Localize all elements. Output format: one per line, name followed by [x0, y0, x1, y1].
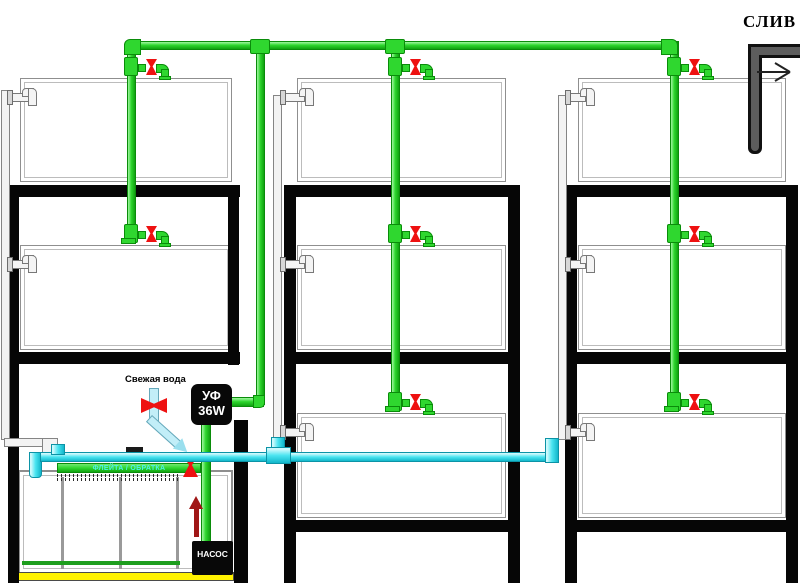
tap-spout-flange	[159, 76, 171, 80]
fresh-water-label: Свежая вода	[125, 374, 186, 385]
fresh-water-arrow-icon	[146, 415, 182, 448]
overflow-union-flange	[280, 90, 286, 105]
collector-rack2-tee	[266, 447, 291, 464]
rack1-post-right-upper	[228, 185, 239, 365]
tap-spout-flange	[702, 76, 714, 80]
flow-up-arrow-head	[189, 496, 203, 509]
tap-rack2-tier2	[385, 224, 433, 247]
overflow-rack2-tier1	[280, 88, 316, 114]
tap-arm	[138, 64, 146, 72]
tank-rack2-tier1	[297, 78, 506, 182]
overflow-standpipe	[28, 255, 37, 273]
uv-unit: УФ 36W	[191, 384, 232, 425]
tap-end-stub	[385, 406, 400, 412]
rack1-shelf-1	[8, 185, 240, 197]
header-tee-rack2	[385, 39, 405, 54]
tap-rack1-tier2	[121, 224, 169, 247]
tank-rack1-tier1	[20, 78, 232, 182]
tap-tee	[388, 57, 402, 76]
tap-arm	[681, 399, 689, 407]
aquarium-plumbing-diagram: ФЛЕЙТА / ОБРАТКА Свежая вода УФ 36W НАСО…	[0, 0, 800, 583]
pump-label: НАСОС	[192, 549, 233, 559]
header-elbow-right	[661, 39, 678, 55]
rack3-shelf-3	[565, 520, 798, 532]
overflow-rack3-tier3	[565, 423, 597, 449]
tap-end-stub	[664, 406, 679, 412]
spray-bar: ФЛЕЙТА / ОБРАТКА	[57, 463, 201, 473]
uv-unit-label-line2: 36W	[191, 403, 232, 418]
tap-tee	[124, 57, 138, 76]
overflow-rack2-tier2	[280, 255, 316, 281]
tap-arm	[402, 231, 410, 239]
tap-arm	[402, 399, 410, 407]
overflow-rack1-tier2	[7, 255, 39, 281]
overflow-rack3-tier1	[565, 88, 597, 114]
tank-inner-wall	[301, 417, 502, 514]
overflow-standpipe	[586, 88, 595, 106]
tank-inner-wall	[582, 417, 782, 514]
tap-tee	[667, 57, 681, 76]
header-tee-riser	[250, 39, 270, 54]
rack2-shelf-1	[284, 185, 520, 197]
spray-bar-label: ФЛЕЙТА / ОБРАТКА	[93, 465, 166, 472]
overflow-rack2-tier3	[280, 423, 316, 449]
rack1-post-right-lower	[234, 420, 248, 583]
tank-rack2-tier3	[297, 413, 506, 518]
sump-baffle	[119, 477, 122, 569]
sump-baffle	[176, 477, 179, 569]
overflow-union-flange	[565, 90, 571, 105]
overflow-standpipe	[305, 88, 314, 106]
tap-spout-flange	[423, 76, 435, 80]
tap-spout-flange	[702, 243, 714, 247]
overflow-standpipe	[586, 255, 595, 273]
overflow-union-flange	[7, 90, 13, 105]
overflow-union-flange	[565, 425, 571, 440]
sewer-flow-arrow-icon	[757, 60, 795, 84]
collector-rack3-end-elbow	[545, 438, 559, 463]
overflow-standpipe	[28, 88, 37, 106]
tap-spout-flange	[159, 243, 171, 247]
tap-rack2-tier3	[385, 392, 433, 415]
rack2-shelf-2	[284, 352, 520, 364]
tank-rack2-tier2	[297, 245, 506, 350]
tank-inner-wall	[24, 249, 228, 346]
tap-arm	[402, 64, 410, 72]
tap-rack3-tier3	[664, 392, 712, 415]
flow-up-arrow-stem	[194, 509, 199, 537]
tap-spout-flange	[423, 243, 435, 247]
tap-arm	[681, 64, 689, 72]
tap-end-stub	[121, 238, 136, 244]
spray-bar-holes-row2	[57, 478, 179, 481]
tap-rack1-tier1	[121, 57, 169, 80]
tap-rack3-tier2	[664, 224, 712, 247]
supply-riser-from-uv	[256, 41, 265, 405]
tank-inner-wall	[582, 249, 782, 346]
tank-inner-wall	[24, 82, 228, 178]
tap-arm	[681, 231, 689, 239]
overflow-standpipe	[305, 255, 314, 273]
overflow-standpipe	[586, 423, 595, 441]
riser-bottom-elbow	[253, 395, 265, 408]
tap-tee	[667, 224, 681, 243]
tap-tee	[388, 224, 402, 243]
overflow-union-flange	[280, 257, 286, 272]
tank-rack3-tier3	[578, 413, 786, 518]
tap-spout-flange	[702, 411, 714, 415]
tap-arm	[138, 231, 146, 239]
rack3-shelf-2	[565, 352, 798, 364]
overflow-union-flange	[7, 257, 13, 272]
pump-unit: НАСОС	[192, 541, 233, 575]
tap-spout-flange	[423, 411, 435, 415]
tank-inner-wall	[301, 82, 502, 178]
overflow-rack3-tier2	[565, 255, 597, 281]
collector-rack1-inlet-stub	[51, 444, 65, 455]
overflow-rack1-tier1	[7, 88, 39, 114]
rack2-shelf-3	[284, 520, 520, 532]
overflow-standpipe	[305, 423, 314, 441]
sump-baffle	[61, 477, 64, 569]
overflow-union-flange	[565, 257, 571, 272]
sewer-drain-label: СЛИВ	[743, 12, 796, 32]
rack3-shelf-1	[565, 185, 798, 197]
tank-inner-wall	[301, 249, 502, 346]
tank-rack1-tier2	[20, 245, 232, 350]
rack1-shelf-2	[8, 352, 240, 364]
tank-rack3-tier2	[578, 245, 786, 350]
uv-unit-label-line1: УФ	[191, 388, 232, 403]
header-elbow-left	[124, 39, 141, 55]
spray-bar-holes-row1	[57, 474, 179, 477]
collector-main-pipe	[40, 452, 558, 462]
tap-rack3-tier1	[664, 57, 712, 80]
tap-rack2-tier1	[385, 57, 433, 80]
sump-heater-line	[22, 561, 180, 565]
flow-up-arrow-icon	[189, 496, 203, 538]
